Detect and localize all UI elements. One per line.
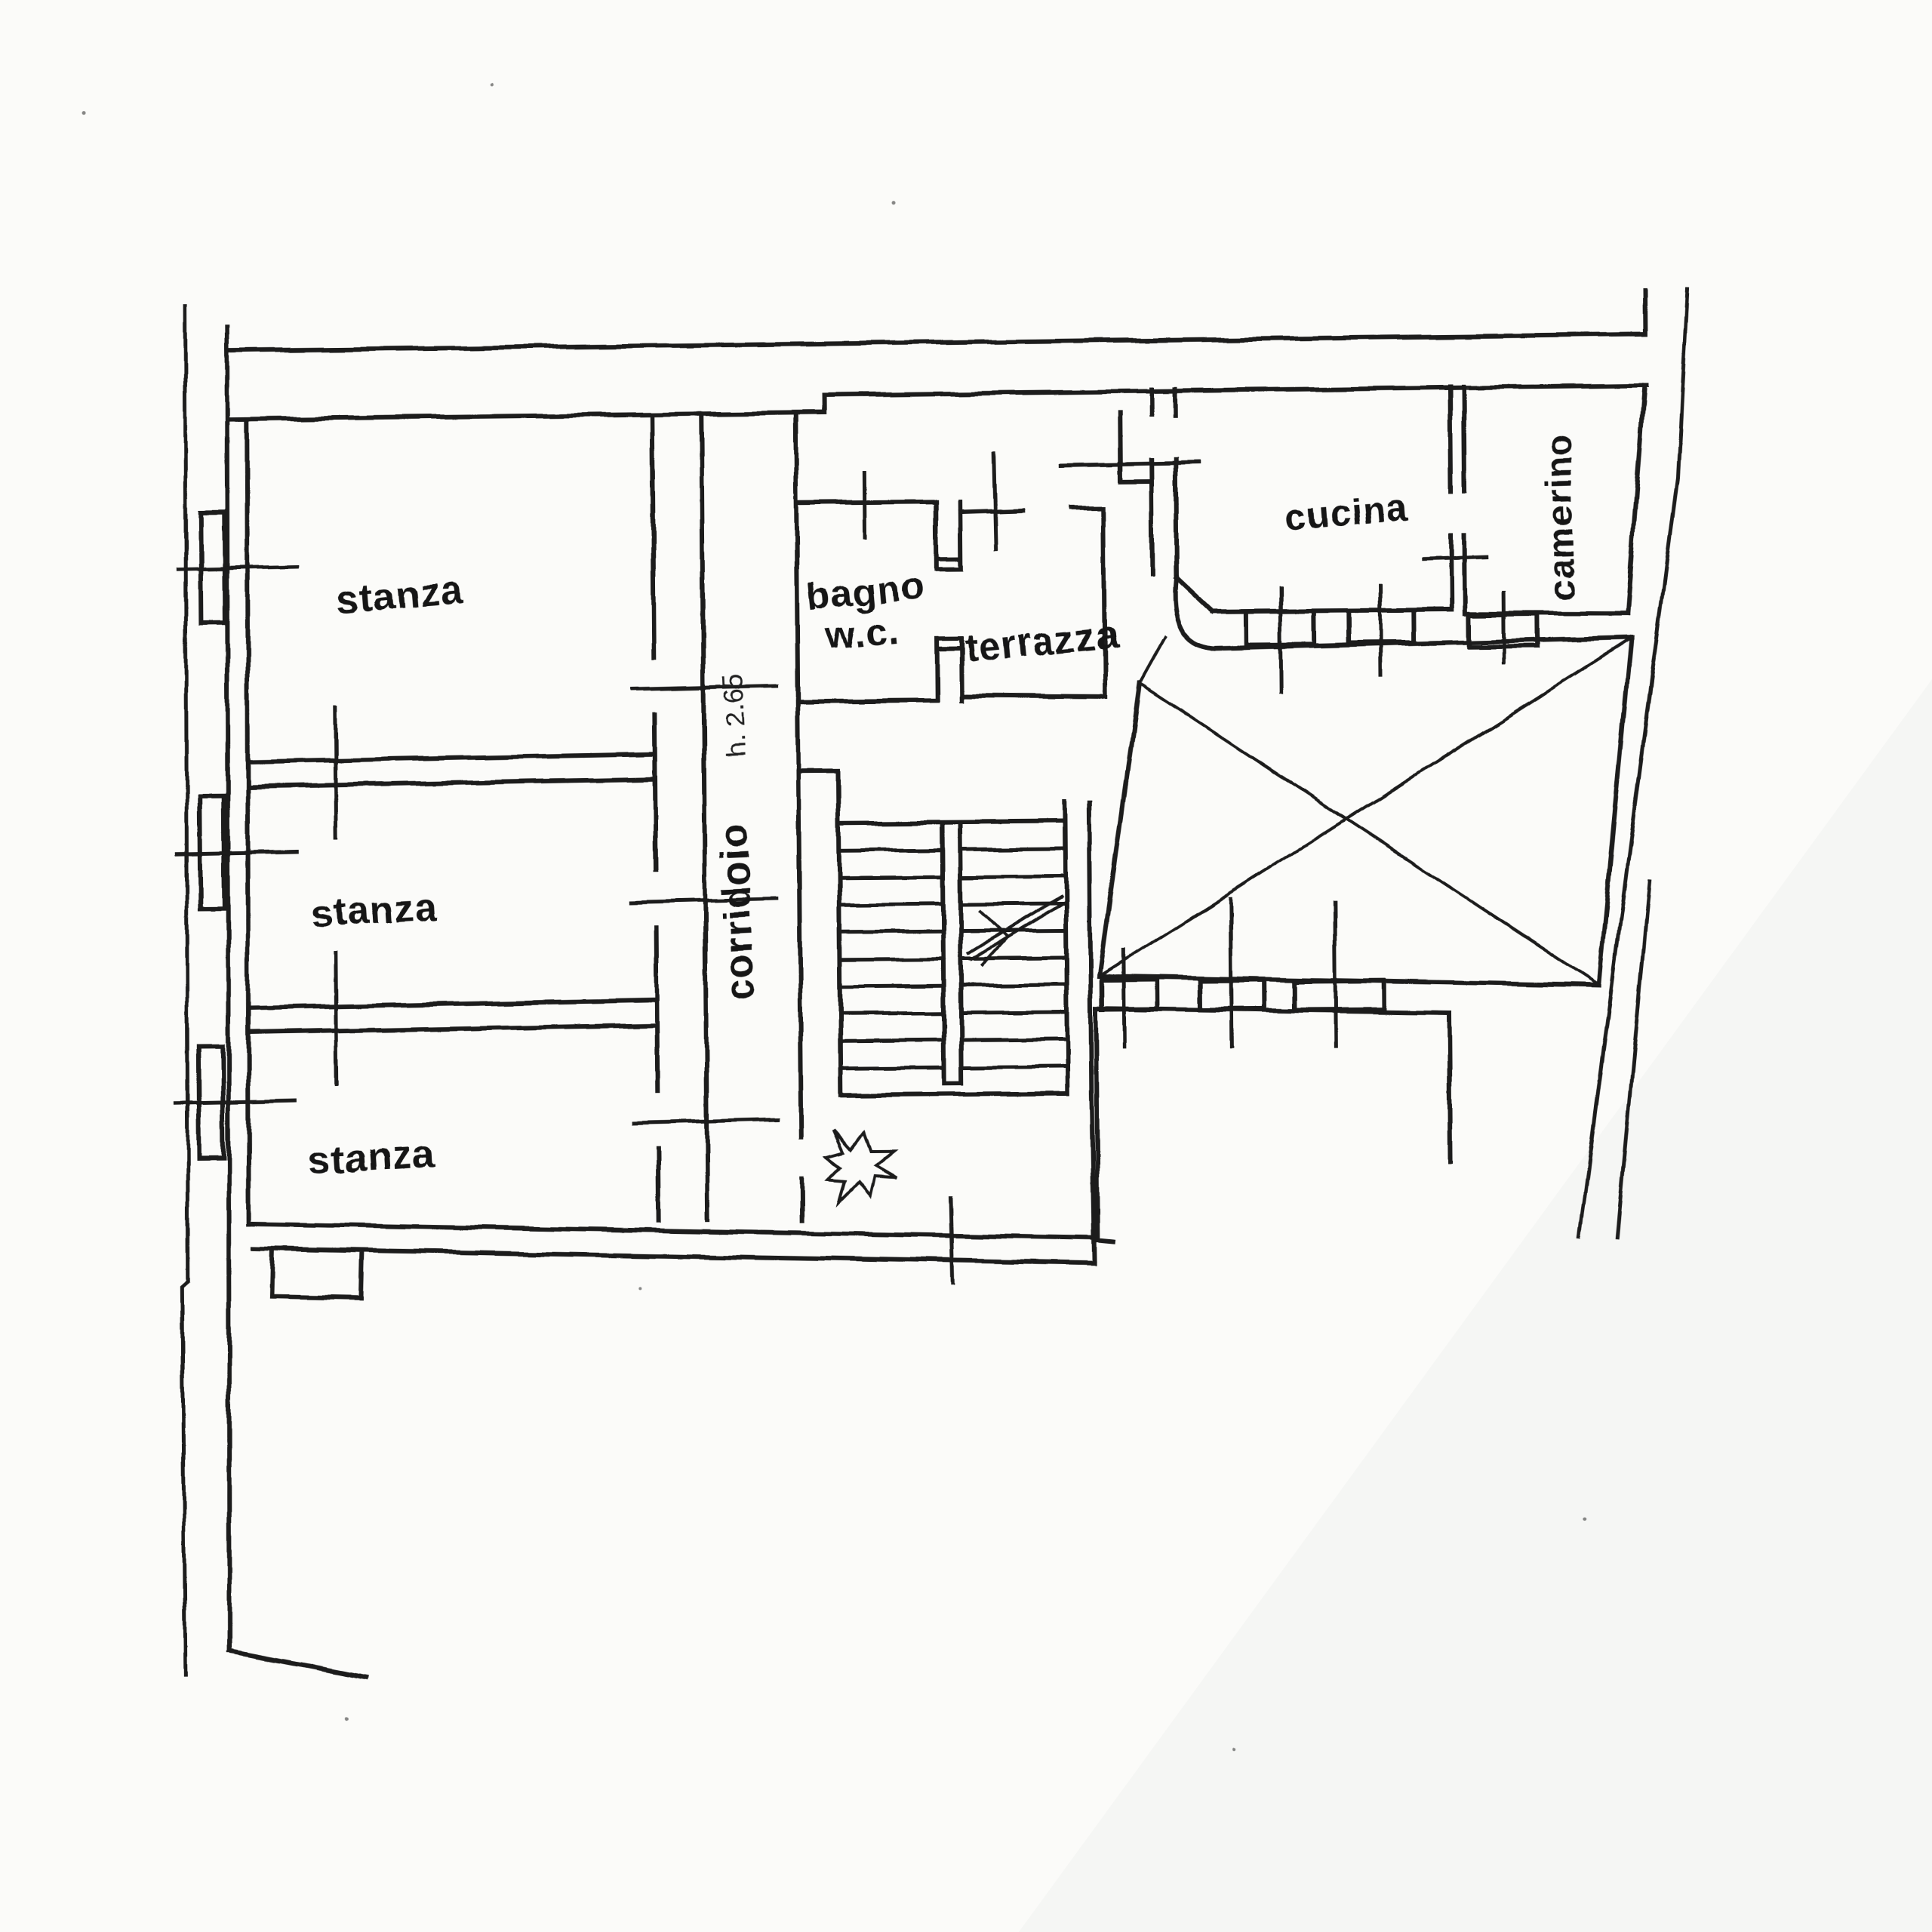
room-label-terrazza: terrazza xyxy=(963,613,1121,671)
atrio-walls xyxy=(1090,896,1451,1263)
scan-shading xyxy=(1019,679,1932,1932)
room-label-cucina: cucina xyxy=(1283,487,1410,539)
corridor-walls xyxy=(625,415,801,1223)
room-label-stanza-3: stanza xyxy=(308,1132,437,1183)
window-symbols-left xyxy=(170,512,303,1158)
south-walls xyxy=(253,1195,1094,1299)
floor-plan-drawing: stanza stanza stanza corridoio h. 2.65 b… xyxy=(0,0,1932,1932)
room-label-wc: w.c. xyxy=(823,609,901,658)
scanned-floor-plan-page: stanza stanza stanza corridoio h. 2.65 b… xyxy=(0,0,1932,1932)
room-label-stanza-1: stanza xyxy=(335,568,465,622)
courtyard-cross xyxy=(1097,638,1635,989)
room-label-corridoio: corridoio xyxy=(712,823,763,1001)
room-label-camerino: camerino xyxy=(1539,432,1583,601)
staircase xyxy=(798,769,1091,1096)
room-label-stanza-2: stanza xyxy=(309,885,438,937)
room-label-bagno: bagno xyxy=(805,565,926,618)
height-note: h. 2.65 xyxy=(717,673,752,758)
door-star-symbol xyxy=(827,1130,897,1203)
